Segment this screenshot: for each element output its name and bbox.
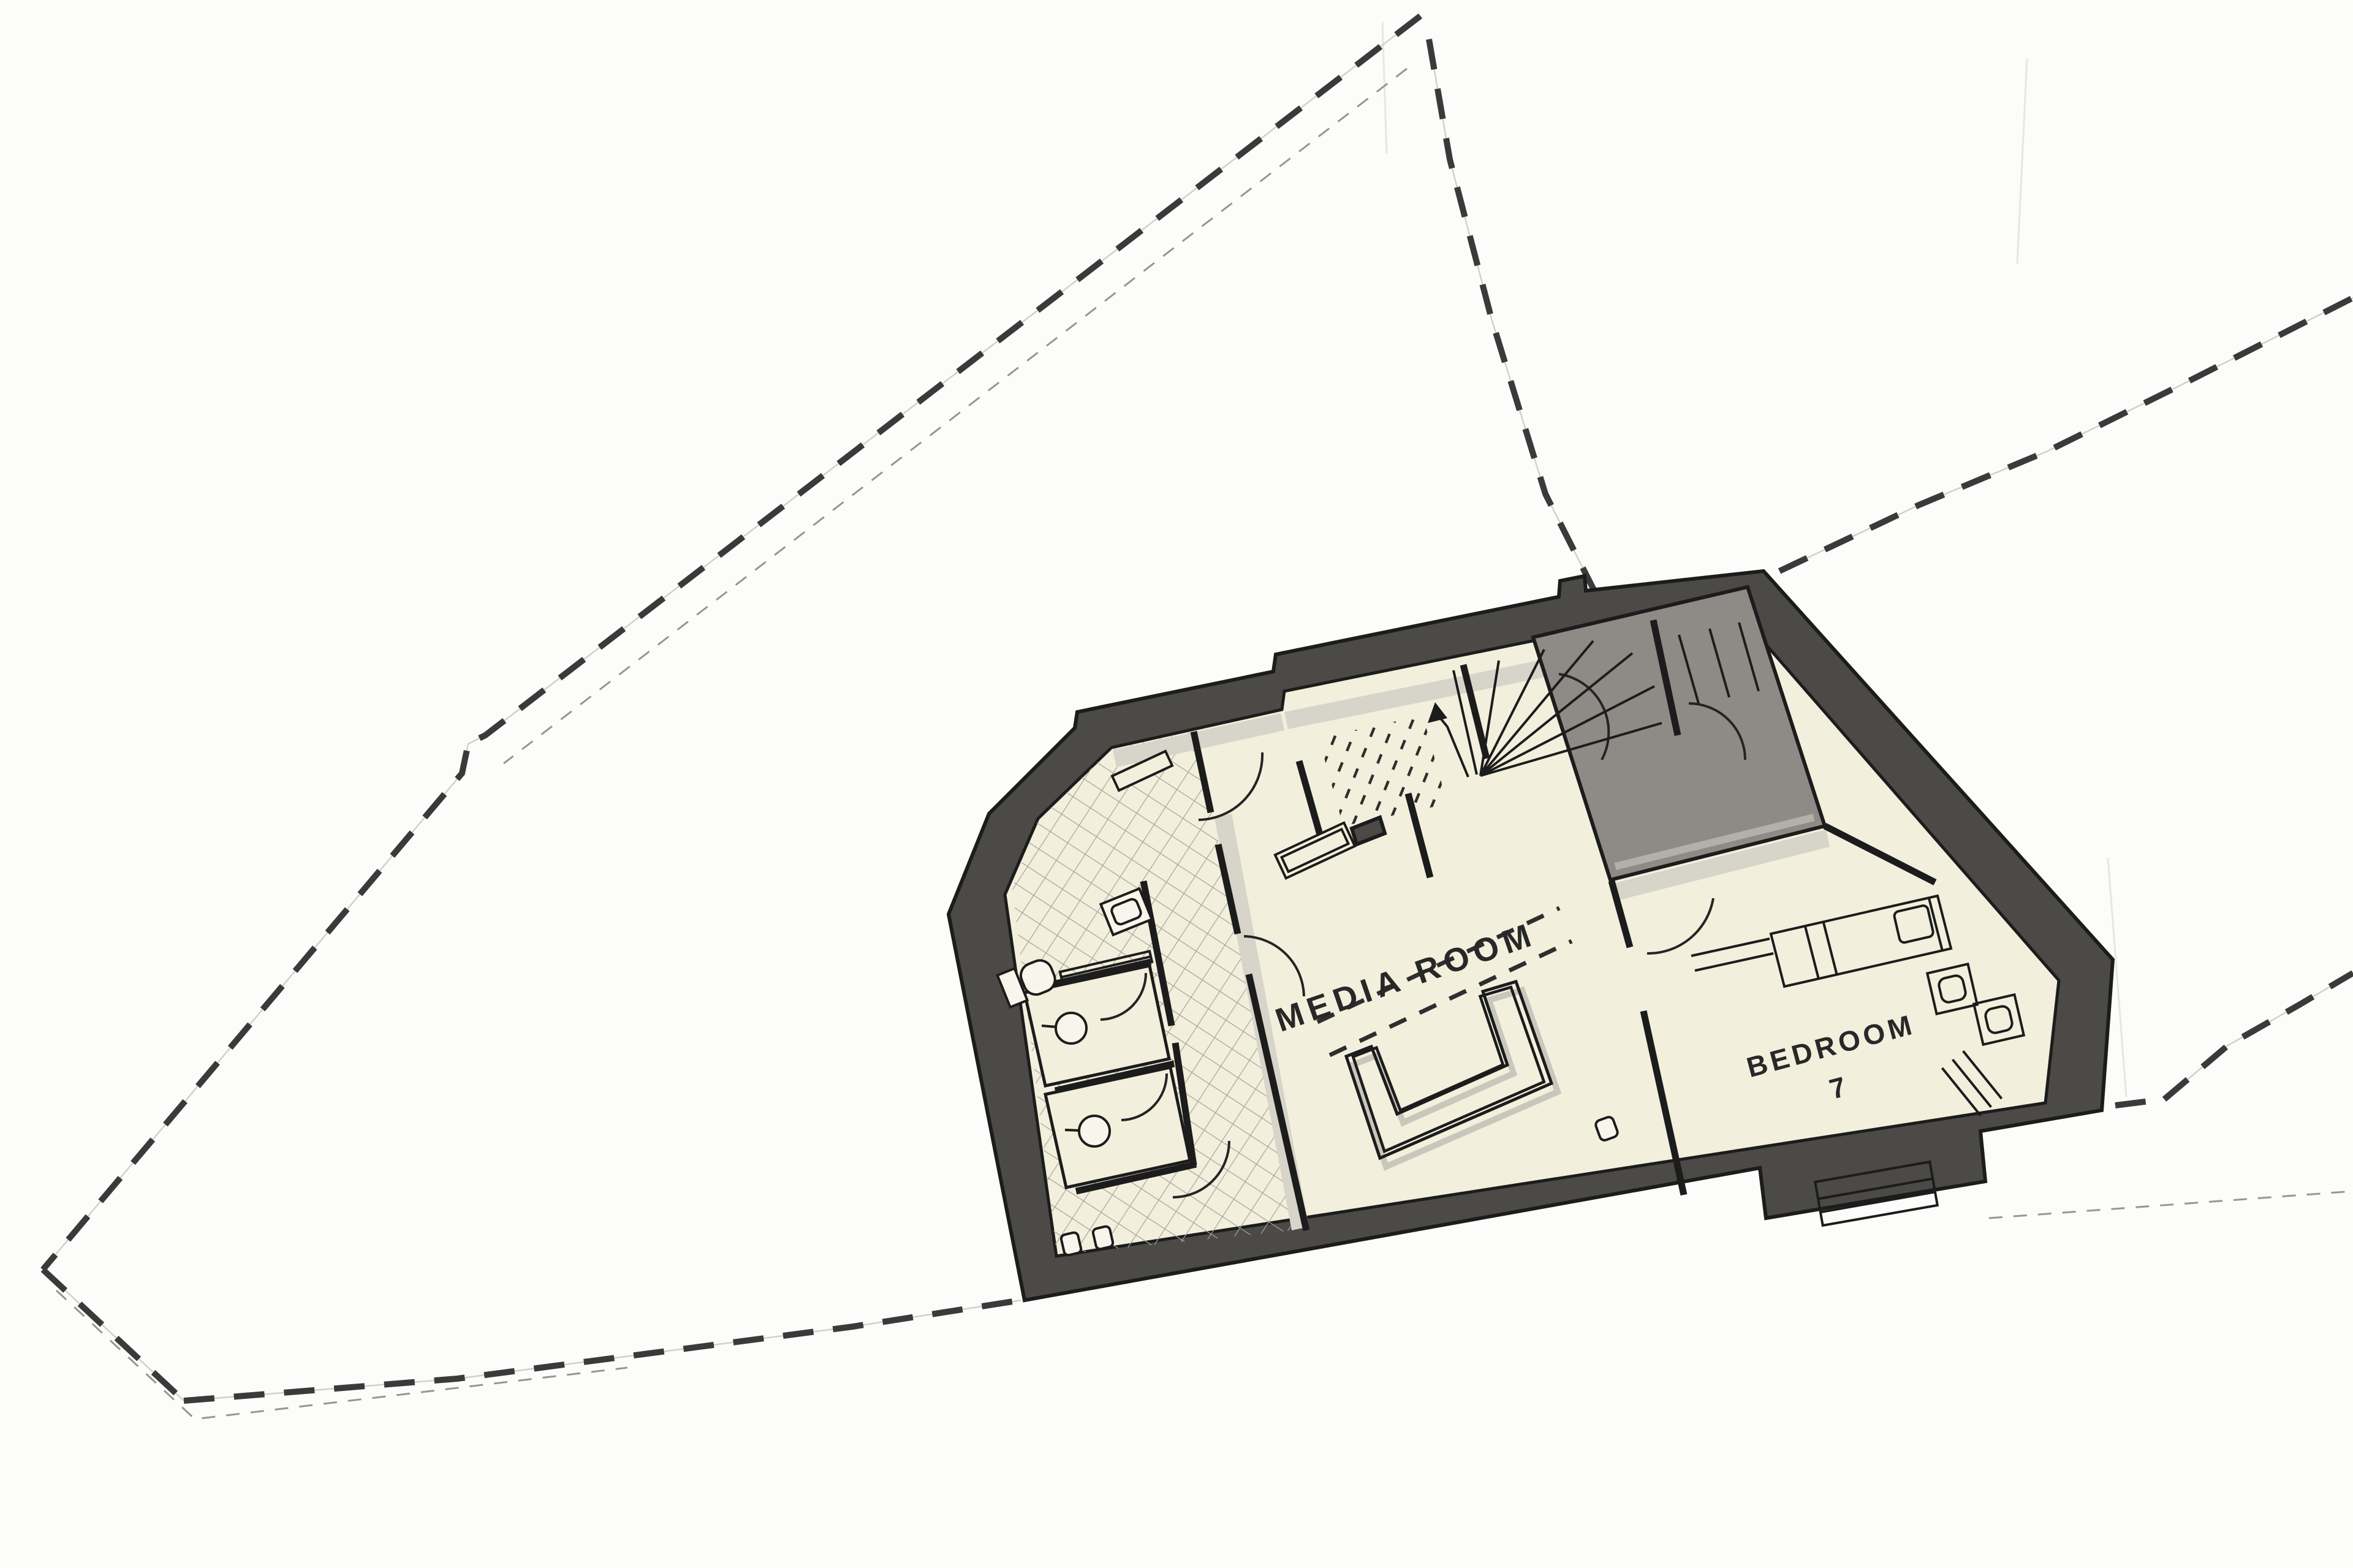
boundary-faint-bottom-right — [1989, 1191, 2353, 1218]
boundary-hairline — [1429, 39, 1607, 615]
building: MEDIA ROOM BEDROOM 7 — [949, 571, 2113, 1300]
tray-outline — [1093, 1225, 1114, 1249]
boundary-hairline — [184, 1300, 1021, 1401]
tray-outline — [1061, 1232, 1082, 1256]
shower-tray — [1061, 1232, 1082, 1256]
boundary-hairline — [1779, 298, 2353, 571]
boundary-line-apex — [1429, 39, 1607, 615]
basin-tap — [1065, 1130, 1080, 1131]
boundary-faint-bottom-left — [56, 1290, 627, 1419]
wash-basin — [1079, 1116, 1110, 1146]
floor-plan-drawing: MEDIA ROOM BEDROOM 7 — [0, 0, 2353, 1568]
floor-plan-page: MEDIA ROOM BEDROOM 7 — [0, 0, 2353, 1568]
boundary-line-bottom — [184, 1300, 1021, 1401]
shower-tray — [1093, 1225, 1114, 1249]
wash-basin — [1056, 1013, 1086, 1043]
boundary-hairline — [2164, 973, 2353, 1099]
crease-line — [2017, 59, 2027, 263]
boundary-corner-bottom-right — [2115, 1099, 2164, 1105]
boundary-faint-left — [504, 69, 1407, 763]
basin-tap — [1042, 1026, 1056, 1027]
boundary-line-right — [2164, 973, 2353, 1099]
